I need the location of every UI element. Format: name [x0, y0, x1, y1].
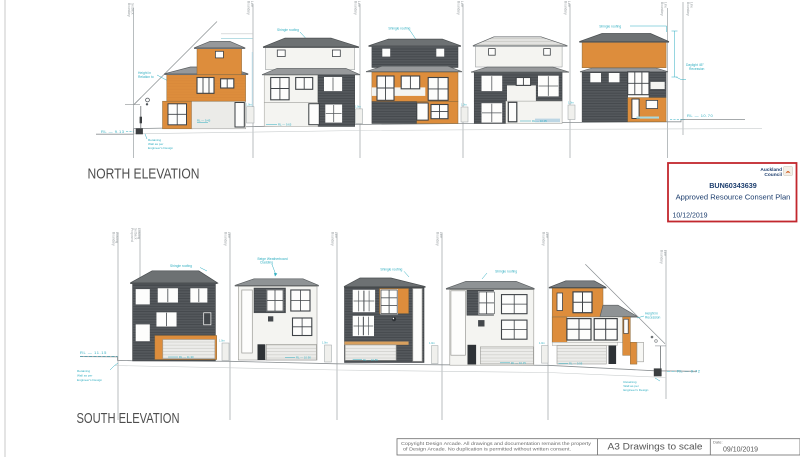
svg-text:Setback: Setback — [134, 228, 138, 240]
svg-text:Council: Council — [764, 172, 782, 178]
svg-text:RL — 10.15: RL — 10.15 — [511, 361, 526, 365]
svg-text:Boundary: Boundary — [224, 232, 228, 246]
svg-text:RL — 9.72: RL — 9.72 — [677, 369, 701, 374]
svg-text:Engineer's Design: Engineer's Design — [148, 146, 173, 150]
svg-text:Recession: Recession — [645, 316, 661, 320]
svg-text:Line: Line — [439, 232, 443, 238]
svg-text:1.0m: 1.0m — [539, 341, 545, 345]
svg-text:Boundary: Boundary — [354, 1, 358, 15]
svg-text:Shingle roofing: Shingle roofing — [277, 28, 299, 32]
svg-text:Shingle roofing: Shingle roofing — [170, 264, 192, 268]
svg-text:Copyright Design Arcade. All d: Copyright Design Arcade. All drawings an… — [401, 441, 592, 446]
svg-text:BUN60343639: BUN60343639 — [709, 181, 757, 190]
svg-text:1.0m: 1.0m — [355, 105, 361, 109]
svg-text:Existing: Existing — [115, 232, 119, 243]
svg-text:Line: Line — [663, 250, 667, 256]
svg-text:Approved Resource Consent Plan: Approved Resource Consent Plan — [676, 193, 791, 202]
svg-text:Line: Line — [250, 1, 254, 7]
svg-text:RL — 9.65: RL — 9.65 — [278, 123, 292, 127]
svg-text:Line: Line — [545, 232, 549, 238]
svg-text:09/10/2019: 09/10/2019 — [723, 447, 758, 454]
svg-text:Shingle roofing: Shingle roofing — [599, 24, 621, 28]
svg-text:Relation to: Relation to — [138, 75, 154, 79]
svg-text:RL — 10.55: RL — 10.55 — [363, 358, 378, 362]
svg-text:1.0m: 1.0m — [568, 101, 574, 105]
svg-text:Shingle roofing: Shingle roofing — [495, 270, 517, 274]
svg-text:Engineer's Design: Engineer's Design — [623, 388, 648, 392]
svg-text:1.0m: 1.0m — [461, 103, 467, 107]
svg-text:Wall as per: Wall as per — [77, 374, 92, 378]
svg-text:Boundary: Boundary — [112, 232, 116, 246]
svg-text:1.0m: 1.0m — [246, 103, 252, 107]
svg-text:Boundary: Boundary — [686, 2, 690, 16]
svg-text:RL — 11.15: RL — 11.15 — [80, 350, 107, 355]
svg-text:SOUTH ELEVATION: SOUTH ELEVATION — [77, 410, 180, 427]
svg-text:Boundary: Boundary — [542, 232, 546, 246]
svg-text:Boundary: Boundary — [660, 250, 664, 264]
svg-text:Boundary: Boundary — [564, 1, 568, 15]
svg-text:Date:: Date: — [713, 439, 723, 444]
svg-text:RL — 9.45: RL — 9.45 — [197, 119, 211, 123]
svg-text:of Design Arcade. No duplicati: of Design Arcade. No duplication is perm… — [403, 446, 571, 451]
svg-text:Cladding: Cladding — [260, 261, 273, 265]
svg-text:Line: Line — [460, 1, 464, 7]
svg-text:Line: Line — [357, 1, 361, 7]
svg-text:Shingle roofing: Shingle roofing — [380, 268, 402, 272]
svg-text:Engineer's Design: Engineer's Design — [77, 378, 102, 382]
svg-text:RL — 10.05: RL — 10.05 — [532, 119, 547, 123]
svg-text:1.0m: 1.0m — [322, 341, 328, 345]
svg-text:Proposed: Proposed — [130, 228, 134, 242]
svg-text:Boundary: Boundary — [457, 1, 461, 15]
svg-text:RL — 10.70: RL — 10.70 — [687, 113, 713, 118]
svg-text:Boundary: Boundary — [247, 1, 251, 15]
svg-text:1.0m: 1.0m — [429, 341, 435, 345]
svg-text:Existing: Existing — [137, 228, 141, 239]
svg-text:RL — 11.30: RL — 11.30 — [179, 355, 194, 359]
svg-text:A3 Drawings to scale: A3 Drawings to scale — [608, 442, 703, 452]
svg-text:RL — 9.95: RL — 9.95 — [569, 362, 583, 366]
svg-text:Retaining: Retaining — [77, 369, 90, 373]
svg-text:RL — 9.13: RL — 9.13 — [101, 129, 125, 134]
svg-text:10/12/2019: 10/12/2019 — [673, 213, 708, 220]
svg-text:Line: Line — [227, 232, 231, 238]
svg-text:Line: Line — [690, 2, 694, 8]
svg-text:Boundary: Boundary — [127, 3, 131, 17]
svg-text:RL — 10.90: RL — 10.90 — [296, 356, 311, 360]
svg-text:Setback: Setback — [131, 3, 135, 15]
svg-text:Line: Line — [567, 1, 571, 7]
svg-text:Line: Line — [664, 2, 668, 8]
svg-text:Boundary: Boundary — [436, 232, 440, 246]
svg-text:Shingle roofing: Shingle roofing — [388, 26, 410, 30]
svg-text:Recession: Recession — [689, 67, 705, 71]
svg-text:Boundary: Boundary — [660, 2, 664, 16]
svg-text:1.0m: 1.0m — [219, 339, 225, 343]
svg-text:Boundary: Boundary — [331, 232, 335, 246]
svg-text:Line: Line — [334, 232, 338, 238]
svg-text:NORTH ELEVATION: NORTH ELEVATION — [88, 166, 200, 183]
